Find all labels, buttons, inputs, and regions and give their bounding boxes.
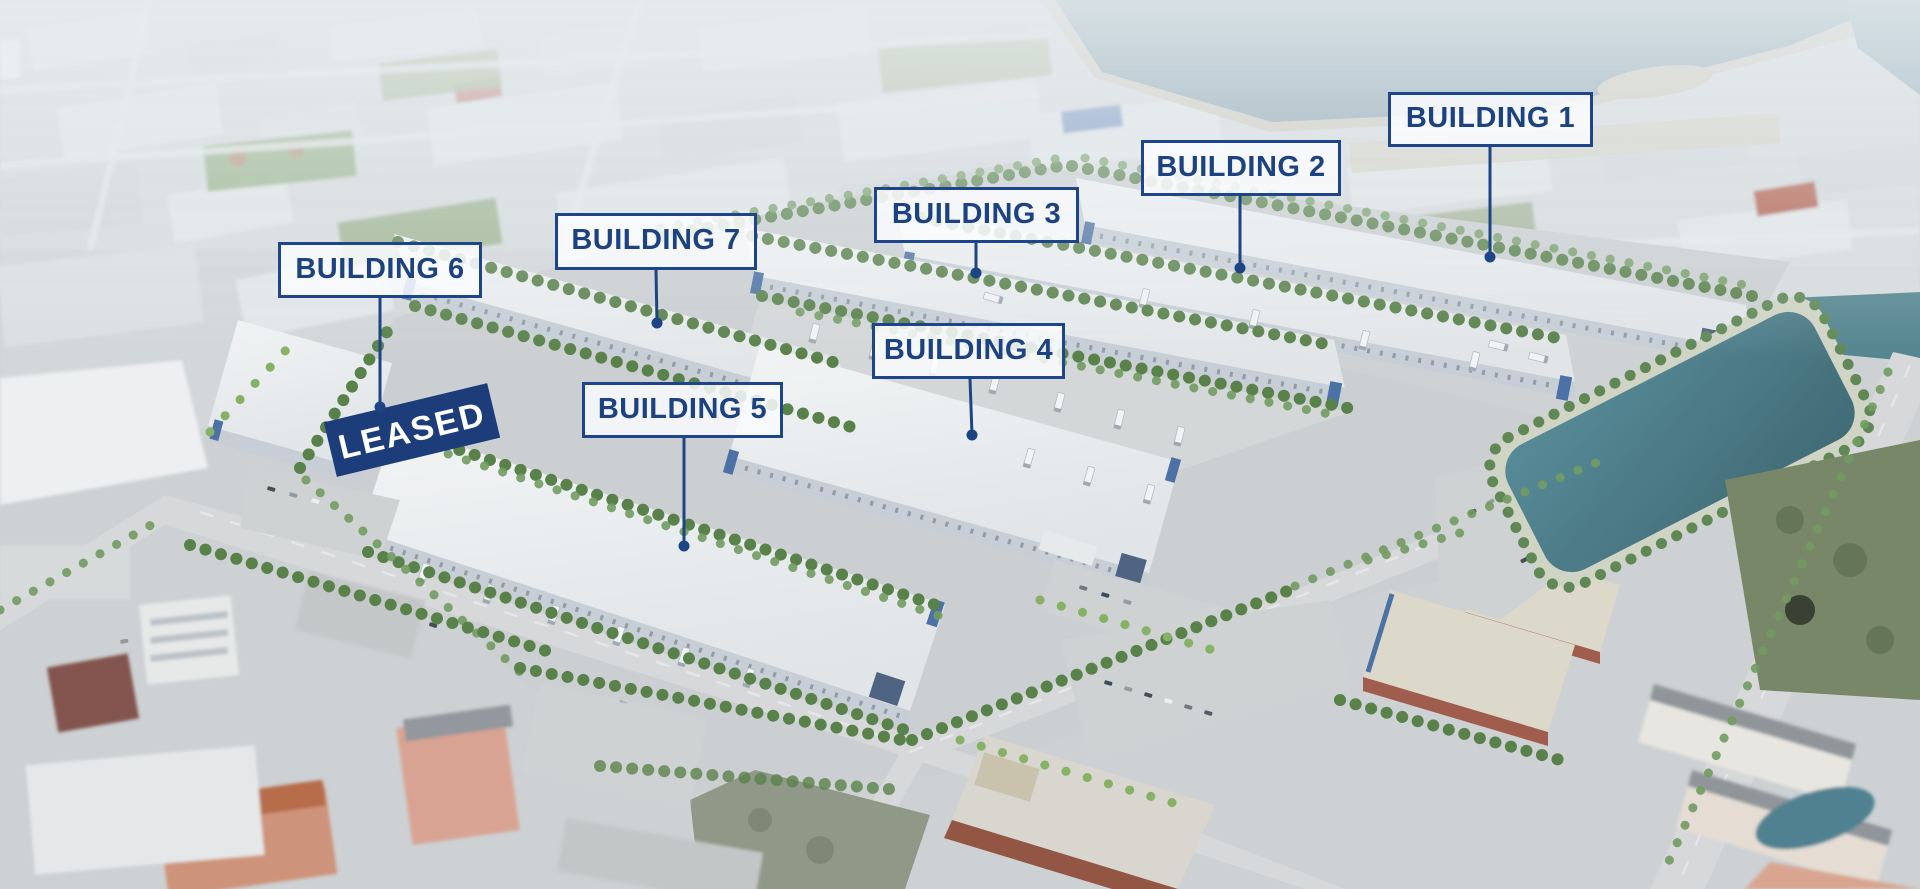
callout-label: BUILDING 6 bbox=[295, 253, 464, 286]
callout-building-3[interactable]: BUILDING 3 bbox=[874, 187, 1079, 243]
callout-building-6[interactable]: BUILDING 6 bbox=[278, 242, 482, 298]
callout-label: BUILDING 3 bbox=[892, 198, 1061, 231]
aerial-photo: LEASED bbox=[0, 0, 1920, 889]
callout-label: BUILDING 1 bbox=[1406, 102, 1575, 135]
callout-label: BUILDING 5 bbox=[598, 393, 767, 426]
callout-building-4[interactable]: BUILDING 4 bbox=[872, 323, 1065, 379]
callout-label: BUILDING 2 bbox=[1156, 151, 1325, 184]
callout-building-1[interactable]: BUILDING 1 bbox=[1388, 92, 1593, 147]
callout-building-2[interactable]: BUILDING 2 bbox=[1141, 140, 1341, 196]
callout-label: BUILDING 4 bbox=[884, 334, 1053, 367]
callout-building-5[interactable]: BUILDING 5 bbox=[582, 382, 783, 438]
callout-building-7[interactable]: BUILDING 7 bbox=[555, 213, 757, 270]
aerial-siteplan: LEASED BUILDING 1 BUILDING 2 BUILDING 3 … bbox=[0, 0, 1920, 889]
callout-label: BUILDING 7 bbox=[571, 224, 740, 257]
color-veil bbox=[0, 0, 1920, 889]
